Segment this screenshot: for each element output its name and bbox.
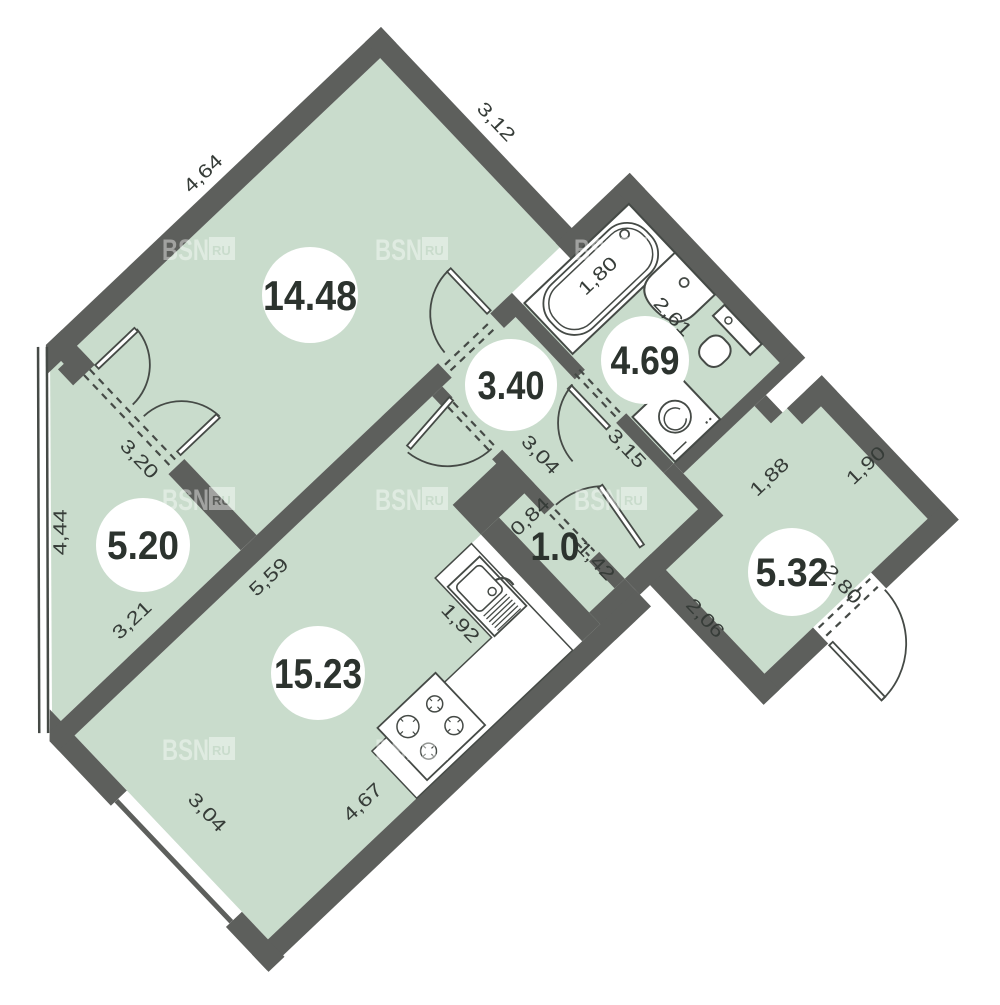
svg-text:3.40: 3.40	[478, 364, 545, 408]
svg-text:15.23: 15.23	[274, 650, 362, 697]
svg-text:4,44: 4,44	[50, 509, 71, 556]
svg-text:BSN: BSN	[574, 484, 621, 517]
svg-text:BSN: BSN	[375, 484, 422, 517]
svg-text:BSN: BSN	[375, 234, 422, 267]
svg-text:BSN: BSN	[162, 234, 209, 267]
svg-text:5.20: 5.20	[107, 524, 179, 568]
svg-text:1.0: 1.0	[531, 525, 580, 569]
svg-text:BSN: BSN	[162, 734, 209, 767]
svg-text:14.48: 14.48	[263, 272, 357, 319]
svg-text:5.32: 5.32	[756, 551, 829, 595]
svg-text:BSN: BSN	[375, 734, 422, 767]
svg-text:4.69: 4.69	[611, 339, 680, 383]
